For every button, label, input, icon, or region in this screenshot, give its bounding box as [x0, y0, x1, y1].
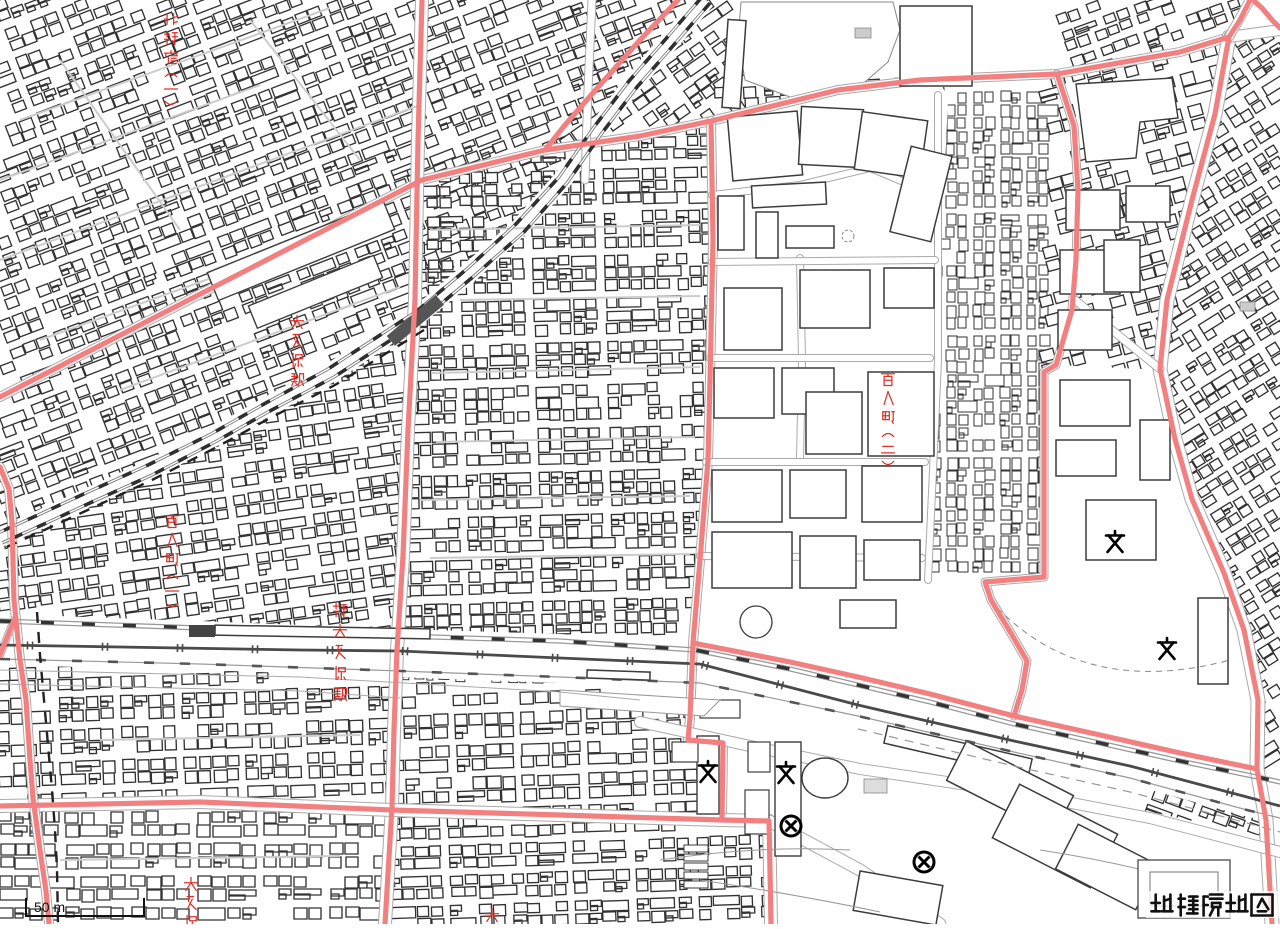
svg-text:50 m: 50 m [34, 899, 65, 915]
